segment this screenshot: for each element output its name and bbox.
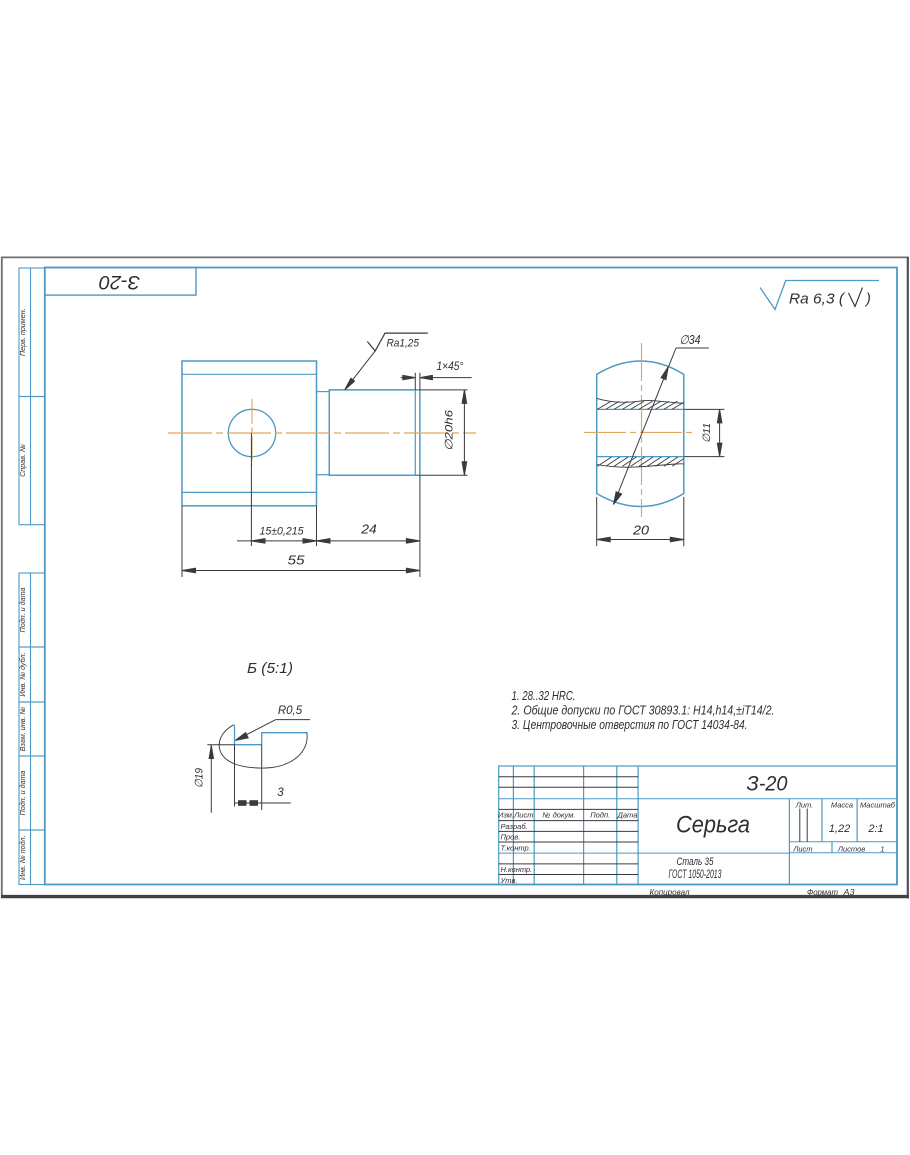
svg-text:Лист: Лист	[792, 845, 812, 854]
svg-text:55: 55	[288, 553, 306, 568]
svg-text:1×45°: 1×45°	[437, 361, 464, 373]
svg-text:Взам. инв. №: Взам. инв. №	[18, 707, 27, 752]
svg-text:Масштаб: Масштаб	[860, 801, 896, 810]
svg-text:): )	[864, 292, 871, 308]
svg-text:Перв. примен.: Перв. примен.	[18, 308, 27, 356]
svg-text:Н.контр.: Н.контр.	[501, 865, 533, 874]
svg-text:Дата: Дата	[617, 811, 638, 820]
svg-text:∅20h6: ∅20h6	[444, 409, 456, 451]
svg-text:Формат: Формат	[807, 887, 838, 897]
svg-text:Инв. № подл.: Инв. № подл.	[18, 835, 27, 880]
svg-text:Подп. и дата: Подп. и дата	[18, 771, 27, 816]
svg-text:3. Центровочные отверстия по Г: 3. Центровочные отверстия по ГОСТ 14034-…	[512, 718, 748, 732]
svg-text:Лист: Лист	[513, 811, 533, 820]
svg-text:А3: А3	[842, 887, 854, 897]
svg-text:∅34: ∅34	[680, 333, 701, 347]
svg-text:∅11: ∅11	[701, 423, 713, 443]
svg-text:20: 20	[632, 524, 649, 538]
svg-text:24: 24	[360, 523, 377, 537]
svg-text:Серьга: Серьга	[676, 812, 750, 839]
svg-text:2:1: 2:1	[867, 823, 883, 835]
svg-text:∅19: ∅19	[194, 768, 206, 788]
svg-text:Лит.: Лит.	[795, 801, 814, 810]
svg-text:Ra 6,3 (: Ra 6,3 (	[789, 292, 846, 308]
svg-text:1,22: 1,22	[829, 823, 850, 835]
svg-text:3: 3	[277, 787, 284, 799]
svg-text:1: 1	[880, 845, 884, 854]
svg-text:Ra1,25: Ra1,25	[387, 338, 420, 350]
svg-text:Копировал: Копировал	[650, 887, 690, 897]
svg-text:Пров.: Пров.	[501, 833, 521, 842]
svg-text:Изм.: Изм.	[498, 811, 514, 820]
svg-text:Разраб.: Разраб.	[501, 822, 528, 831]
svg-text:ГОСТ 1050-2013: ГОСТ 1050-2013	[669, 867, 722, 881]
svg-text:Листов: Листов	[837, 845, 865, 854]
svg-text:Т.контр.: Т.контр.	[501, 843, 531, 852]
svg-text:№ докум.: № докум.	[542, 811, 575, 820]
svg-text:R0,5: R0,5	[278, 705, 303, 717]
svg-text:Справ. №: Справ. №	[18, 444, 27, 477]
svg-text:1. 28..32 HRC.: 1. 28..32 HRC.	[512, 689, 576, 703]
svg-text:Инв. № дубл.: Инв. № дубл.	[18, 652, 27, 696]
svg-text:15±0,215: 15±0,215	[260, 526, 305, 538]
svg-text:З-20: З-20	[99, 271, 140, 292]
svg-text:Б (5:1): Б (5:1)	[247, 661, 293, 677]
svg-text:Подп. и дата: Подп. и дата	[18, 588, 27, 633]
svg-text:2. Общие допуски по ГОСТ 30893: 2. Общие допуски по ГОСТ 30893.1: H14,h1…	[511, 704, 775, 718]
svg-text:З-20: З-20	[747, 773, 788, 796]
svg-text:Масса: Масса	[831, 801, 853, 810]
svg-text:Утв.: Утв.	[500, 876, 518, 885]
svg-text:Подп.: Подп.	[590, 811, 610, 820]
